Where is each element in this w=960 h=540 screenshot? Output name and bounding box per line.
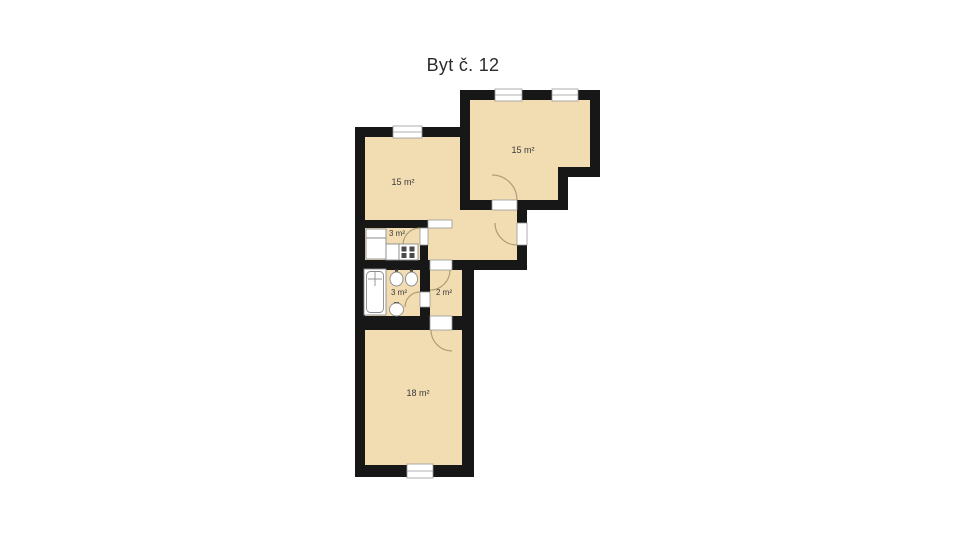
- room-bottom-label: 18 m²: [406, 388, 429, 398]
- opening-passage: [428, 220, 452, 228]
- wall-right-outer: [590, 90, 600, 177]
- window-icon: [552, 89, 578, 101]
- wall-shared-vertical: [460, 90, 470, 210]
- hallway-label: 2 m²: [436, 288, 452, 297]
- wall-bottom-room-right: [462, 270, 474, 477]
- window-icon: [393, 126, 422, 138]
- stove-icon: [399, 244, 418, 260]
- room-top-right-label: 15 m²: [511, 145, 534, 155]
- wall-bathroom-right-upper: [420, 270, 430, 292]
- bathtub-icon: [364, 269, 386, 315]
- window-icon: [407, 464, 433, 478]
- fridge-icon: [366, 229, 386, 259]
- room-top-right-floor: [465, 95, 595, 170]
- window-icon: [495, 89, 522, 101]
- wall-top-right-room-top: [460, 90, 600, 100]
- hall-floor: [425, 205, 522, 265]
- wall-kitchen-top: [355, 220, 428, 228]
- counter-icon: [386, 244, 399, 260]
- wall-left-outer: [355, 127, 365, 477]
- kitchen-label: 3 m²: [389, 229, 405, 238]
- room-top-left-label: 15 m²: [391, 177, 414, 187]
- bathroom-label: 3 m²: [391, 288, 407, 297]
- room-top-right-floor-lower: [465, 160, 563, 205]
- wall-bottom-room-top: [355, 316, 474, 330]
- floor-plan: 15 m² 15 m² 3 m² 3 m² 2 m² 18 m²: [0, 0, 960, 540]
